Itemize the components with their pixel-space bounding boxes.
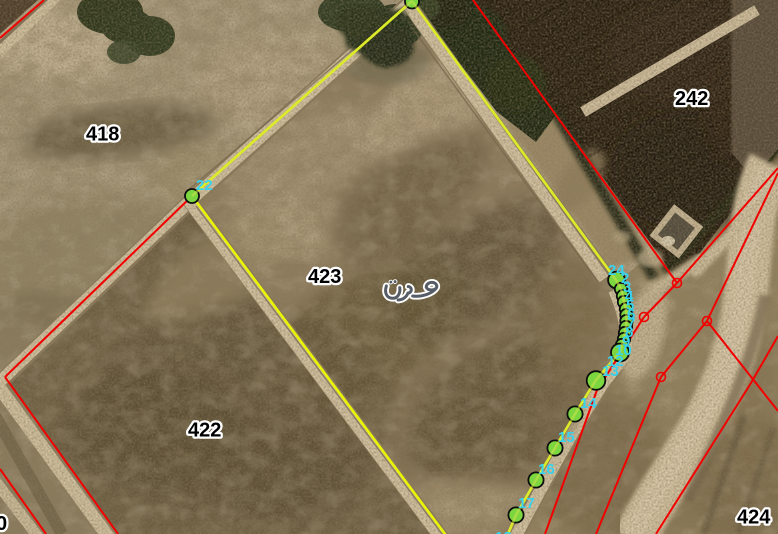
svg-text:17: 17	[518, 495, 535, 512]
svg-text:424: 424	[737, 507, 771, 529]
svg-text:0: 0	[0, 513, 7, 534]
svg-text:242: 242	[675, 88, 708, 110]
svg-text:423: 423	[308, 266, 341, 288]
svg-text:14: 14	[580, 395, 597, 412]
svg-text:16: 16	[538, 461, 555, 478]
svg-text:15: 15	[558, 429, 575, 446]
svg-text:422: 422	[188, 420, 221, 442]
svg-text:418: 418	[86, 124, 119, 146]
svg-text:22: 22	[196, 177, 213, 194]
svg-text:18: 18	[495, 529, 512, 534]
svg-text:13: 13	[602, 363, 619, 380]
